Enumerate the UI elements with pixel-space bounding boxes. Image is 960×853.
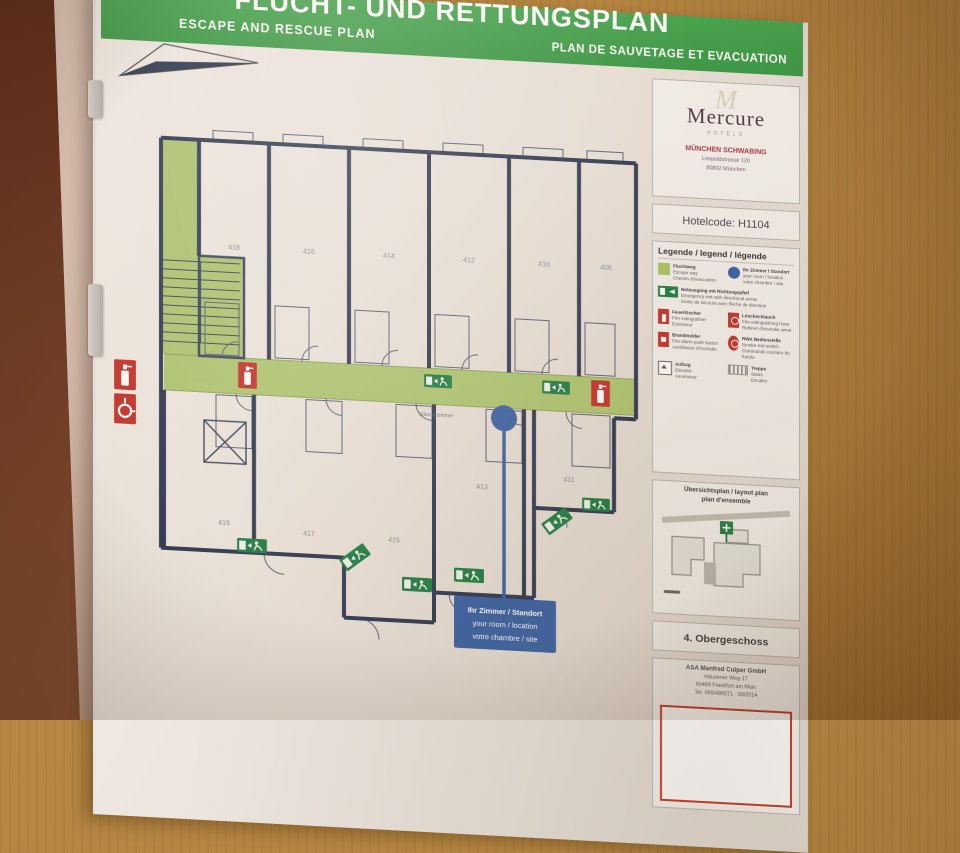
fire-hose-icon <box>728 312 739 328</box>
legend-item-elevator: AufzugElevatorAscenseur <box>658 360 724 381</box>
exit-sign-icon <box>582 497 610 512</box>
building-wing <box>704 562 716 585</box>
escape-route-swatch-icon <box>658 263 670 276</box>
smoke-vent-icon <box>728 335 739 351</box>
room-number: 414 <box>383 253 395 261</box>
location-dot-icon <box>728 266 740 279</box>
legend-item-escape-route: FluchtwegEscape wayChemin d'évacuation <box>658 263 724 284</box>
floor-label: 4. Obergeschoss <box>652 620 800 658</box>
exit-sign-icon <box>237 538 267 554</box>
room-number: 411 <box>563 476 574 484</box>
north-arrow-icon <box>120 41 258 82</box>
emergency-exit-icon <box>658 286 678 298</box>
location-callout-text: Ihr Zimmer / Standort your room / locati… <box>468 605 543 644</box>
legend-item-fire-alarm: BrandmelderFire alarm push buttonAvertis… <box>658 331 724 358</box>
exit-sign-icon <box>454 568 484 584</box>
escape-plan-sheet: FLUCHT- UND RETTUNGSPLAN ESCAPE AND RESC… <box>93 0 808 853</box>
legend-item-smoke-vent: RWA BedienstelleSmoke exit switchCommand… <box>728 335 794 362</box>
fire-extinguisher-icon <box>658 308 669 324</box>
room-number: 413 <box>476 484 488 492</box>
fire-extinguisher-icon <box>114 359 136 390</box>
escape-route-highlight <box>160 140 634 416</box>
fire-extinguisher-icon <box>238 362 257 389</box>
legend-item-location: Ihr Zimmer / Standortyour room / locatio… <box>728 266 794 287</box>
room-number: 408 <box>600 264 612 272</box>
exit-sign-icon <box>542 380 570 395</box>
hotelcode-box: Hotelcode: H1104 <box>652 203 800 241</box>
room-number: 410 <box>538 261 550 269</box>
floor-plan: 418 416 414 412 410 408 419 417 415 413 … <box>104 0 649 794</box>
publisher-box: ASA Manfred Culper GmbH Häusener Weg 17 … <box>652 657 800 815</box>
room-number: 416 <box>303 248 315 256</box>
room-number: 415 <box>388 537 400 545</box>
approval-stamp-box <box>660 705 792 808</box>
fire-extinguisher-icon <box>591 380 610 407</box>
legend-grid: FluchtwegEscape wayChemin d'évacuation I… <box>658 263 794 386</box>
fire-hose-icon <box>114 393 136 424</box>
location-marker: Ihr Zimmer / Standort your room / locati… <box>454 403 556 654</box>
photo-of-escape-plan: { "palette":{ "banner_green":"#3fa24c","… <box>0 0 960 720</box>
legend-item-fire-extinguisher: FeuerlöscherFire extinguisherExtincteur <box>658 308 724 329</box>
room-number: 412 <box>463 257 475 265</box>
scale-bar <box>664 590 680 594</box>
room-number: 418 <box>228 244 240 252</box>
legend-item-fire-hose: LöschschlauchFire extinguishing hoseRobi… <box>728 312 794 333</box>
legend-item-emergency-exit: Notausgang mit RichtungspfeilEmergency e… <box>658 286 794 311</box>
overview-box: Übersichtsplan / layout plan plan d'ense… <box>652 479 800 621</box>
stairs-icon <box>728 364 748 375</box>
exit-sign-icon <box>424 374 452 389</box>
mounting-clip-icon <box>88 284 103 357</box>
mounting-clip-icon <box>88 80 103 119</box>
fire-alarm-icon <box>658 331 669 347</box>
legend-box: Legende / legend / légende FluchtwegEsca… <box>652 240 800 480</box>
room-number: 419 <box>218 520 230 528</box>
info-column: M Mercure HOTELS MÜNCHEN SCHWABING Leopo… <box>652 78 800 822</box>
site-map <box>658 502 794 605</box>
elevator-icon <box>658 360 672 375</box>
legend-item-stairs: TreppeStairsEscalier <box>728 364 794 385</box>
hotel-logo-box: M Mercure HOTELS MÜNCHEN SCHWABING Leopo… <box>652 78 800 204</box>
room-number: 417 <box>303 530 315 538</box>
elevator-shaft <box>204 420 246 464</box>
exit-sign-icon <box>402 577 432 593</box>
